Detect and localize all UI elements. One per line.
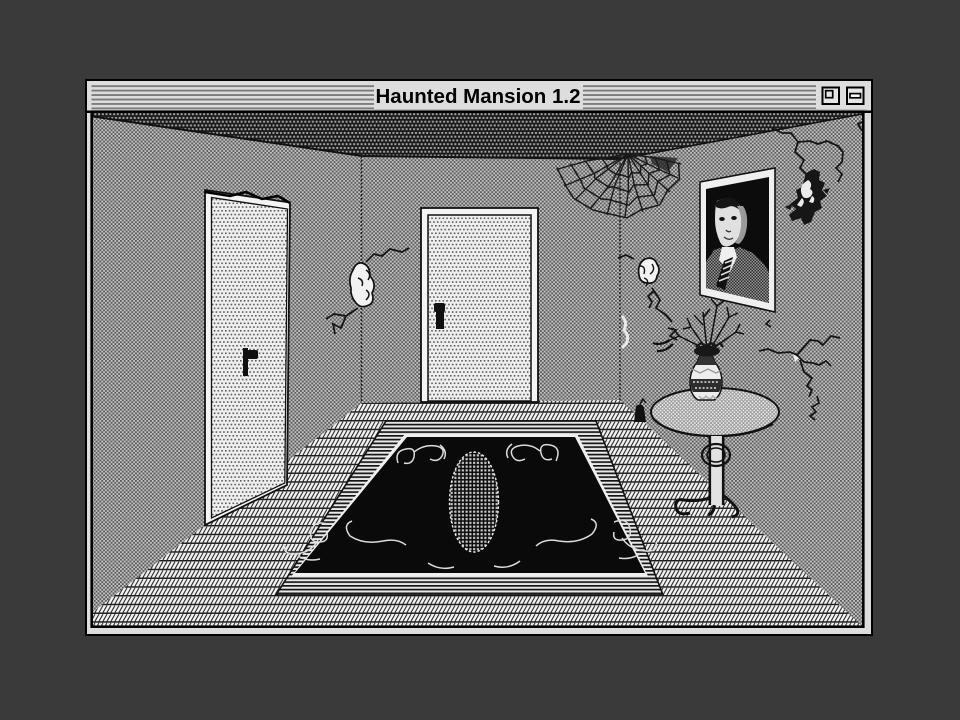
svg-text:Haunted Mansion 1.2: Haunted Mansion 1.2: [375, 85, 580, 108]
